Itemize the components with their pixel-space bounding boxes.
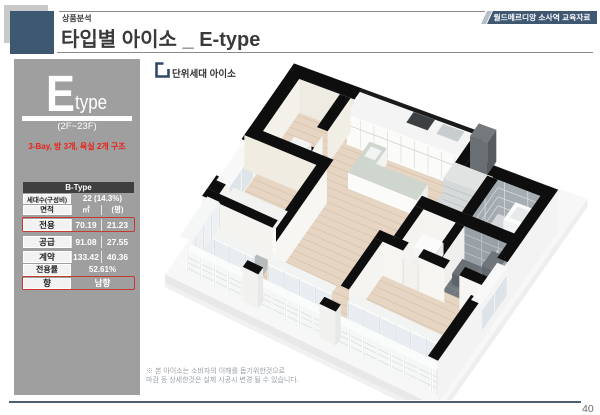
svg-text:월드메르디앙 소사역 교육자료: 월드메르디앙 소사역 교육자료 xyxy=(494,13,591,22)
